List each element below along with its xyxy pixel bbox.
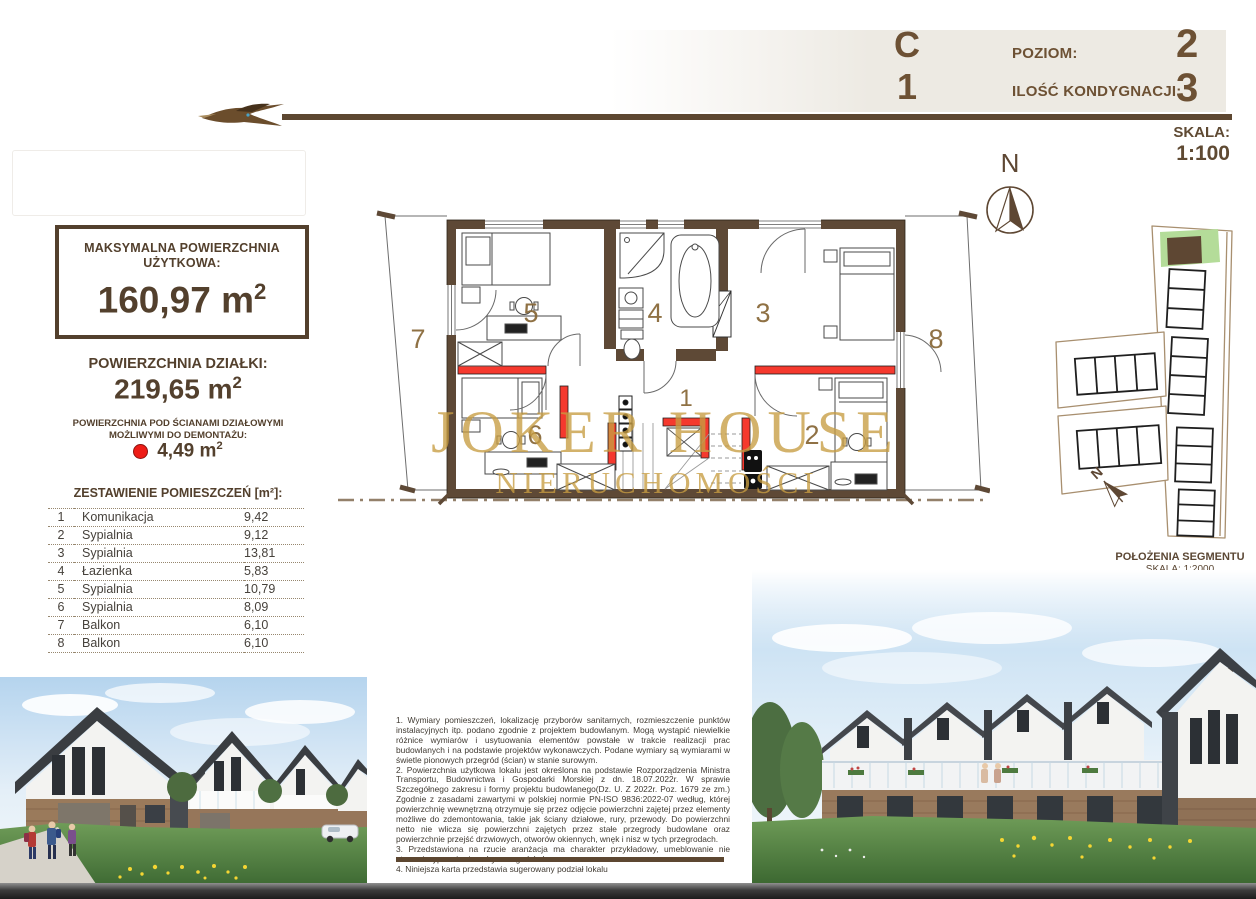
max-area-title-line1: MAKSYMALNA POWIERZCHNIA — [63, 241, 301, 256]
level-label: POZIOM: — [1012, 45, 1182, 62]
max-area-value: 160,97 m2 — [63, 279, 301, 321]
left-render-photo — [0, 677, 367, 884]
header-values: 2 3 — [1176, 22, 1220, 110]
table-row: 2Sypialnia9,12 — [48, 527, 304, 545]
notes-underline — [396, 857, 724, 862]
partition-row: 4,49 m2 — [40, 440, 316, 462]
bird-logo-icon — [196, 94, 288, 134]
right-render-photo — [752, 570, 1256, 884]
note-4: 4. Niniejsza karta przedstawia sugerowan… — [396, 865, 730, 875]
table-row: 4Łazienka5,83 — [48, 563, 304, 581]
property-card-page: C 1 POZIOM: ILOŚĆ KONDYGNACJI: 2 3 SKALA… — [0, 0, 1256, 899]
note-2: 2. Powierzchnia użytkowa lokalu jest okr… — [396, 766, 730, 845]
table-row: 7Balkon6,10 — [48, 617, 304, 635]
floor-plan: 7 5 4 3 8 1 6 2 JOKER HOUSE NIERUCHOMOŚC… — [335, 190, 990, 512]
note-1: 1. Wymiary pomieszczeń, lokalizację przy… — [396, 716, 730, 766]
table-row: 6Sypialnia8,09 — [48, 599, 304, 617]
legal-notes: 1. Wymiary pomieszczeń, lokalizację przy… — [396, 716, 730, 875]
room-table-title: ZESTAWIENIE POMIESZCZEŃ [m²]: — [40, 486, 316, 500]
table-row: 8Balkon6,10 — [48, 635, 304, 653]
partition-note: POWIERZCHNIA POD ŚCIANAMI DZIAŁOWYMI MOŻ… — [40, 418, 316, 441]
room-table: 1Komunikacja9,42 2Sypialnia9,12 3Sypialn… — [48, 508, 304, 653]
table-row: 5Sypialnia10,79 — [48, 581, 304, 599]
plot-area-label: POWIERZCHNIA DZIAŁKI: — [40, 356, 316, 372]
partition-value: 4,49 m2 — [157, 440, 223, 462]
room-label-4: 4 — [647, 298, 662, 328]
room-label-7: 7 — [410, 324, 425, 354]
table-row: 1Komunikacja9,42 — [48, 509, 304, 527]
site-map: N — [1048, 218, 1248, 548]
max-area-title-line2: UŻYTKOWA: — [63, 256, 301, 271]
table-row: 3Sypialnia13,81 — [48, 545, 304, 563]
scale-block: SKALA: 1:100 — [1100, 124, 1230, 166]
room-label-5: 5 — [523, 298, 538, 328]
washed-logo-area — [12, 150, 306, 216]
red-dot-icon — [133, 444, 148, 459]
header-divider — [282, 114, 1232, 120]
storeys-label: ILOŚĆ KONDYGNACJI: — [1012, 83, 1182, 100]
plot-area-value: 219,65 m2 — [40, 373, 316, 405]
storeys-value: 3 — [1176, 66, 1220, 110]
scale-value: 1:100 — [1100, 142, 1230, 166]
footer-bar — [0, 883, 1256, 899]
compass-north-letter: N — [1001, 148, 1020, 178]
unit-number: 1 — [885, 66, 929, 108]
max-area-box: MAKSYMALNA POWIERZCHNIA UŻYTKOWA: 160,97… — [55, 225, 309, 339]
current-unit-marker — [1167, 236, 1202, 265]
level-value: 2 — [1176, 22, 1220, 66]
unit-letter: C — [885, 24, 929, 66]
watermark-line2: NIERUCHOMOŚCI — [495, 465, 818, 500]
site-map-title: POŁOŻENIA SEGMENTU — [1078, 551, 1256, 563]
watermark-line1: JOKER HOUSE — [431, 399, 899, 465]
room-label-8: 8 — [928, 324, 943, 354]
room-label-3: 3 — [755, 298, 770, 328]
unit-id: C 1 — [885, 24, 929, 108]
scale-label: SKALA: — [1100, 124, 1230, 141]
